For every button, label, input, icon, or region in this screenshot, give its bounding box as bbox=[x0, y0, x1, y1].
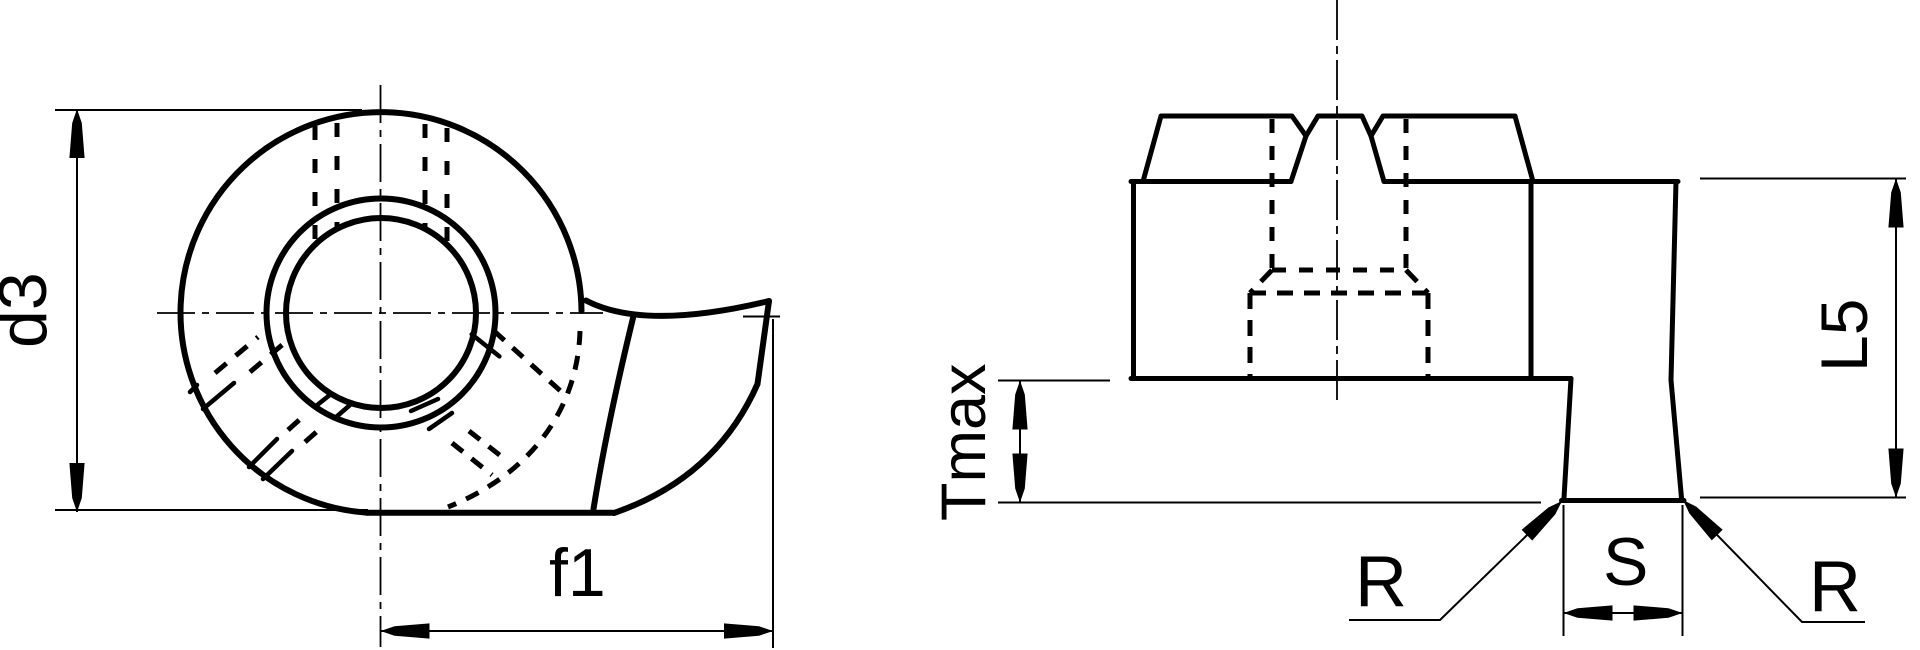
svg-text:R: R bbox=[1809, 547, 1861, 627]
svg-text:f1: f1 bbox=[549, 535, 606, 611]
svg-text:d3: d3 bbox=[0, 272, 61, 348]
svg-text:L5: L5 bbox=[1807, 299, 1881, 372]
svg-text:S: S bbox=[1603, 524, 1648, 600]
svg-text:Tmax: Tmax bbox=[929, 364, 999, 522]
svg-text:R: R bbox=[1355, 542, 1407, 622]
